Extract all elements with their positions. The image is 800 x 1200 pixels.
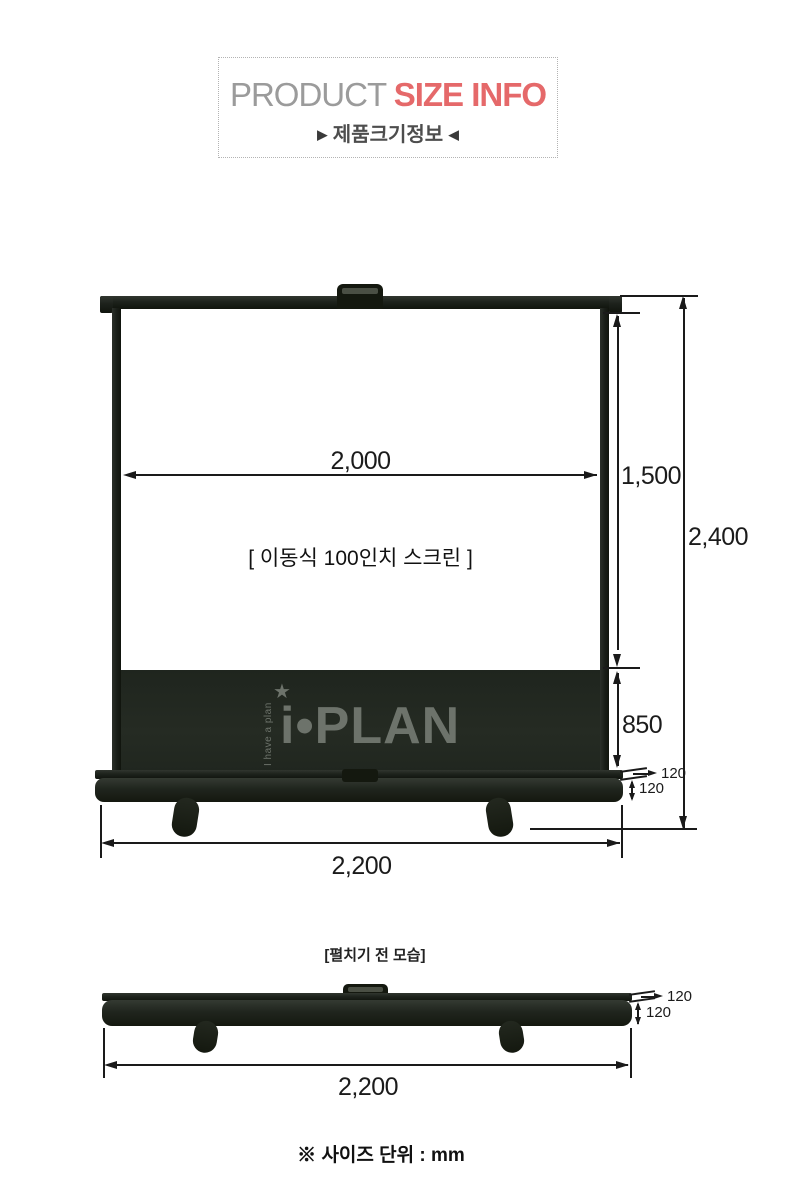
left-pole bbox=[112, 308, 121, 773]
folded-bar bbox=[102, 1000, 632, 1026]
tick-ground bbox=[530, 828, 697, 830]
arrow-up-icon bbox=[613, 314, 621, 327]
base-center-notch bbox=[342, 769, 378, 782]
title-size-info: SIZE INFO bbox=[394, 76, 546, 113]
bottom-case: ★ I have a plan i•PLAN bbox=[121, 670, 600, 773]
arrow-left-icon bbox=[101, 839, 114, 847]
arrow-right-icon bbox=[607, 839, 620, 847]
right-pole bbox=[600, 308, 609, 773]
arrow-down-icon bbox=[613, 755, 621, 768]
dim-label-120-lip: 120 bbox=[667, 988, 692, 1005]
tick-1 bbox=[629, 990, 655, 995]
tick-bottom bbox=[603, 667, 640, 669]
dim-label-2400: 2,400 bbox=[688, 523, 748, 552]
dim-label-2200: 2,200 bbox=[100, 852, 623, 881]
arrow-left-icon bbox=[104, 1061, 117, 1069]
right-foot bbox=[484, 796, 515, 838]
screen-surface bbox=[121, 309, 600, 670]
arrow-up-icon bbox=[629, 780, 635, 788]
arrow-right-icon bbox=[654, 993, 663, 999]
ext-line-right bbox=[621, 805, 623, 858]
left-triangle-icon: ◀ bbox=[449, 127, 459, 142]
unit-note: ※ 사이즈 단위 : mm bbox=[0, 1140, 762, 1167]
arrow-right-icon bbox=[616, 1061, 629, 1069]
dim-label-120-body: 120 bbox=[639, 780, 664, 797]
arrow-right-icon bbox=[648, 770, 657, 776]
brand-logo-on-handle bbox=[342, 288, 378, 294]
ext-line-right bbox=[630, 1028, 632, 1078]
screen-label: [ 이동식 100인치 스크린 ] bbox=[121, 542, 600, 572]
arrow-up-icon bbox=[679, 296, 687, 309]
title-product: PRODUCT bbox=[230, 76, 386, 113]
subtitle-text: 제품크기정보 bbox=[333, 124, 443, 146]
arrow-up-icon bbox=[635, 1002, 641, 1010]
top-bar-right-cap bbox=[609, 296, 622, 313]
page-subtitle: ▶ 제품크기정보 ◀ bbox=[219, 118, 557, 147]
arrow-up-icon bbox=[613, 671, 621, 684]
ext-line-left bbox=[103, 1028, 105, 1078]
dim-line bbox=[617, 316, 619, 650]
dim-label-850: 850 bbox=[622, 711, 662, 740]
dim-line bbox=[683, 298, 685, 828]
arrow-down-icon bbox=[629, 793, 635, 801]
tick-1 bbox=[620, 767, 647, 772]
brand-logo-on-folded-handle bbox=[348, 987, 383, 992]
dim-line bbox=[617, 673, 619, 766]
dim-label-2000: 2,000 bbox=[121, 447, 600, 476]
page-title: PRODUCT SIZE INFO bbox=[219, 76, 557, 114]
tick-top bbox=[603, 312, 640, 314]
header-box: PRODUCT SIZE INFO ▶ 제품크기정보 ◀ bbox=[218, 57, 558, 158]
watermark-tagline: I have a plan bbox=[263, 694, 274, 766]
left-foot bbox=[170, 796, 201, 838]
dim-label-120-body: 120 bbox=[646, 1004, 671, 1021]
product-size-info-page: PRODUCT SIZE INFO ▶ 제품크기정보 ◀ [ 이동식 100인치… bbox=[0, 0, 800, 1200]
dim-label-1500: 1,500 bbox=[621, 462, 681, 491]
folded-caption: [펼치기 전 모습] bbox=[275, 944, 475, 965]
dim-line bbox=[104, 842, 620, 844]
arrow-down-icon bbox=[613, 654, 621, 667]
dim-line bbox=[107, 1064, 628, 1066]
arrow-down-icon bbox=[635, 1017, 641, 1025]
watermark-brand: i•PLAN bbox=[280, 700, 460, 752]
dim-label-2200: 2,200 bbox=[103, 1073, 633, 1102]
right-triangle-icon: ▶ bbox=[317, 127, 327, 142]
ext-line-left bbox=[100, 805, 102, 858]
tick-2 bbox=[629, 997, 655, 1002]
dim-label-120-lip: 120 bbox=[661, 765, 686, 782]
